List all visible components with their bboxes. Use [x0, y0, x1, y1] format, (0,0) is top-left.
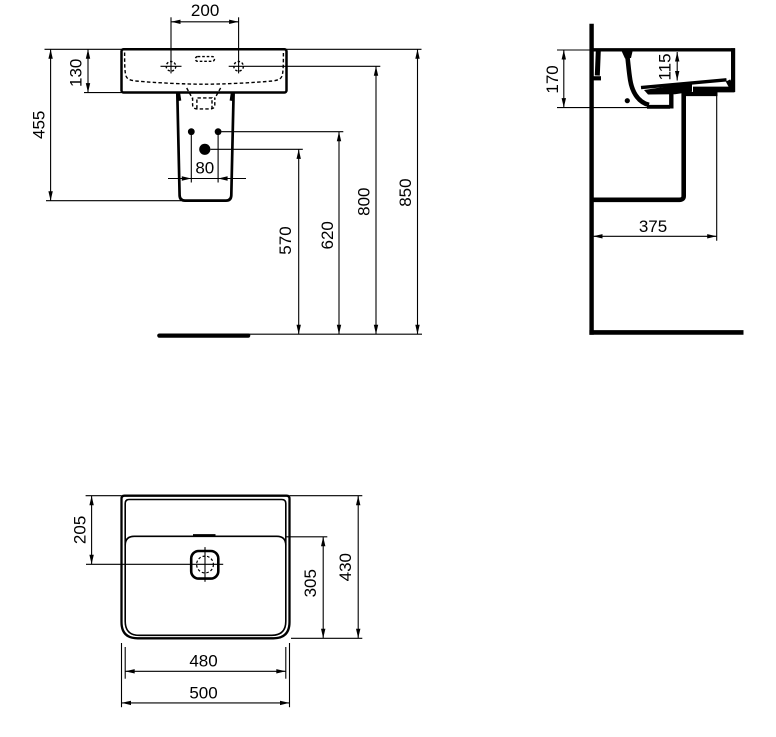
svg-text:430: 430	[336, 553, 355, 581]
svg-text:170: 170	[543, 65, 562, 93]
svg-text:205: 205	[71, 516, 90, 544]
svg-text:115: 115	[655, 53, 674, 80]
svg-text:200: 200	[191, 1, 219, 20]
svg-text:305: 305	[301, 569, 320, 597]
svg-text:620: 620	[318, 221, 337, 249]
svg-text:130: 130	[67, 59, 86, 87]
svg-text:480: 480	[189, 651, 217, 670]
svg-text:455: 455	[30, 111, 49, 139]
svg-text:570: 570	[276, 226, 295, 254]
svg-text:850: 850	[396, 178, 415, 206]
svg-text:80: 80	[195, 158, 214, 177]
svg-text:375: 375	[639, 217, 667, 236]
svg-text:800: 800	[354, 188, 373, 216]
svg-text:500: 500	[189, 684, 217, 703]
